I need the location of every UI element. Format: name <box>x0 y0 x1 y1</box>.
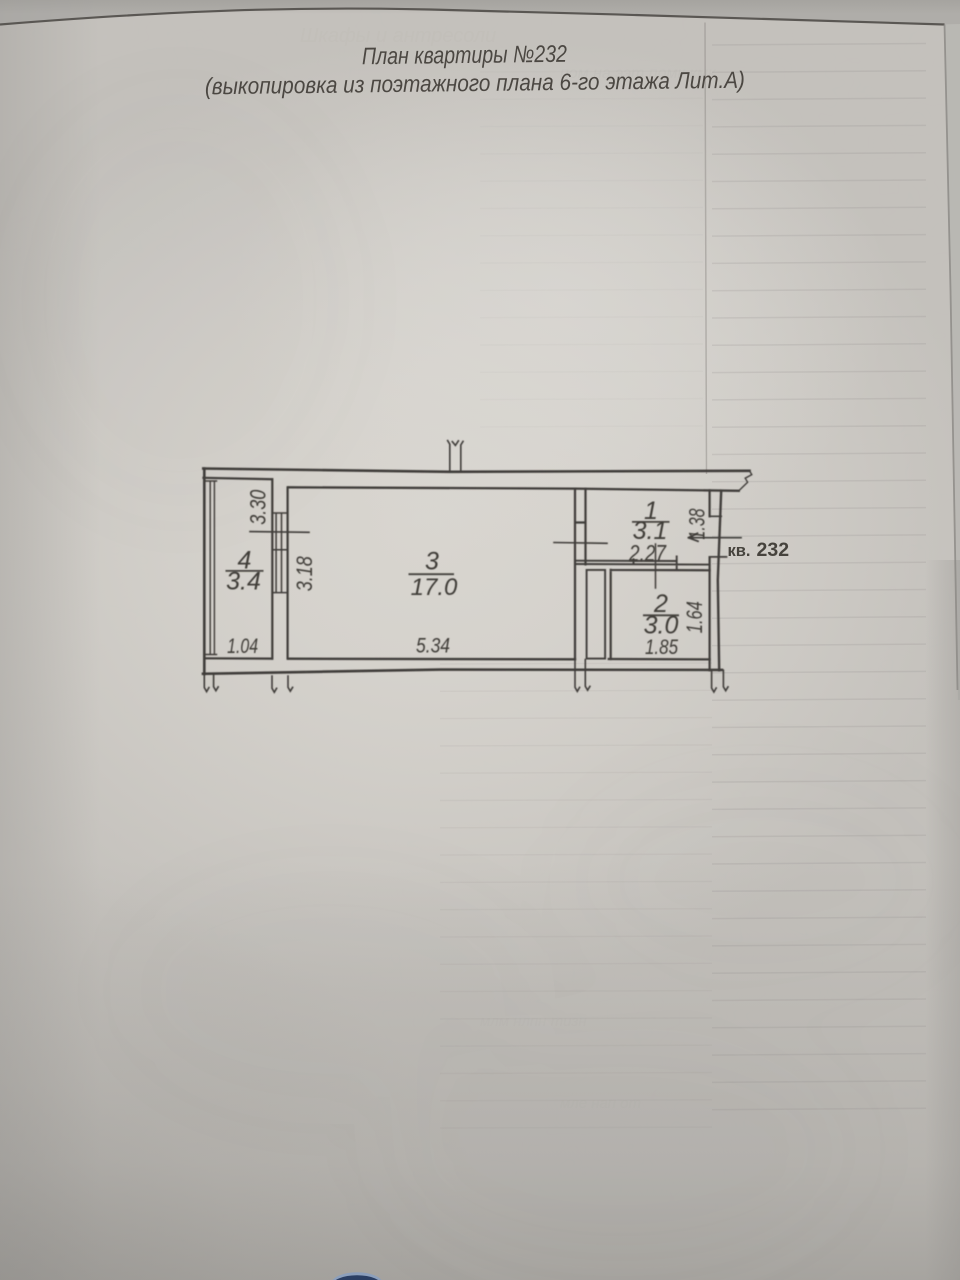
svg-text:3.4: 3.4 <box>226 568 261 596</box>
svg-text:3.18: 3.18 <box>292 556 317 592</box>
svg-text:17.0: 17.0 <box>411 574 458 601</box>
svg-text:3: 3 <box>425 548 439 576</box>
svg-text:1.64: 1.64 <box>682 601 707 633</box>
svg-text:3.30: 3.30 <box>245 489 270 525</box>
svg-text:мле нап от: мле нап от <box>560 1095 641 1112</box>
svg-text:2.27: 2.27 <box>628 540 667 566</box>
svg-text:млм нлпн тизн: млм нлпн тизн <box>480 1013 587 1030</box>
svg-text:1.38: 1.38 <box>685 508 710 540</box>
svg-text:1.04: 1.04 <box>227 635 258 658</box>
svg-text:План квартиры №232: План квартиры №232 <box>362 41 567 71</box>
svg-text:кв.232: кв.232 <box>728 539 790 561</box>
svg-text:5.34: 5.34 <box>416 635 450 658</box>
svg-text:1.85: 1.85 <box>645 636 678 659</box>
